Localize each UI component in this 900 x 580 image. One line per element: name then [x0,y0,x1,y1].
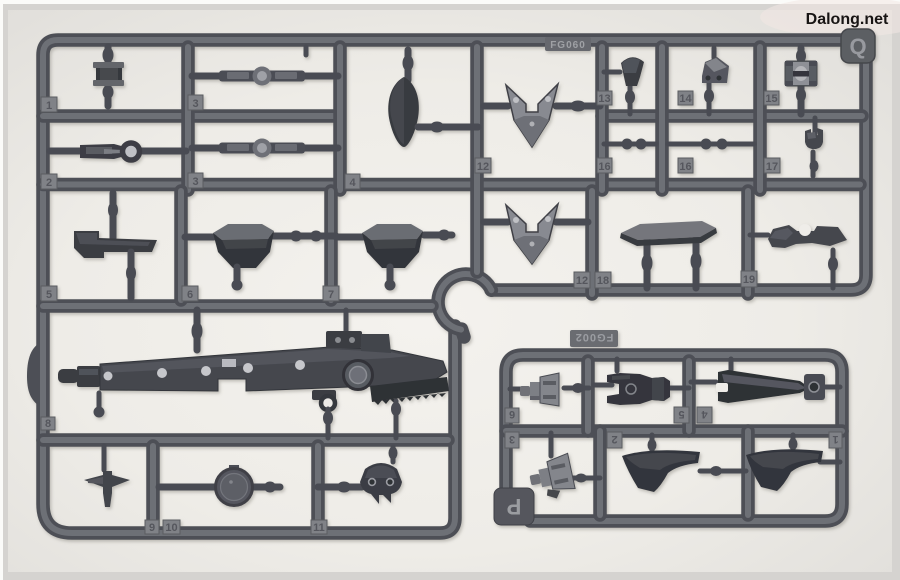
svg-text:Dalong.net: Dalong.net [806,11,889,28]
svg-text:8: 8 [45,418,51,430]
svg-text:3: 3 [192,176,198,188]
svg-text:16: 16 [598,161,610,173]
svg-text:12: 12 [576,275,588,287]
svg-text:15: 15 [765,93,777,105]
svg-text:19: 19 [743,274,755,286]
svg-text:11: 11 [313,522,325,534]
svg-text:6: 6 [187,289,193,301]
svg-text:FG002: FG002 [575,331,614,343]
svg-text:6: 6 [509,408,515,420]
svg-text:2: 2 [611,433,617,445]
svg-text:Q: Q [849,34,866,59]
svg-text:13: 13 [598,93,610,105]
svg-text:16: 16 [679,161,691,173]
svg-text:1: 1 [46,100,52,112]
svg-text:P: P [507,494,522,519]
svg-text:14: 14 [679,93,692,105]
svg-text:4: 4 [349,177,356,189]
svg-text:17: 17 [766,161,778,173]
svg-text:3: 3 [509,433,515,445]
svg-text:4: 4 [701,408,708,420]
svg-text:5: 5 [678,408,684,420]
svg-text:5: 5 [46,289,52,301]
svg-text:10: 10 [165,522,177,534]
svg-text:1: 1 [832,433,838,445]
svg-text:7: 7 [328,289,334,301]
svg-text:3: 3 [192,98,198,110]
svg-text:18: 18 [597,275,609,287]
svg-text:FG060: FG060 [550,40,586,51]
svg-text:9: 9 [149,522,155,534]
svg-text:12: 12 [477,161,489,173]
svg-text:2: 2 [46,177,52,189]
